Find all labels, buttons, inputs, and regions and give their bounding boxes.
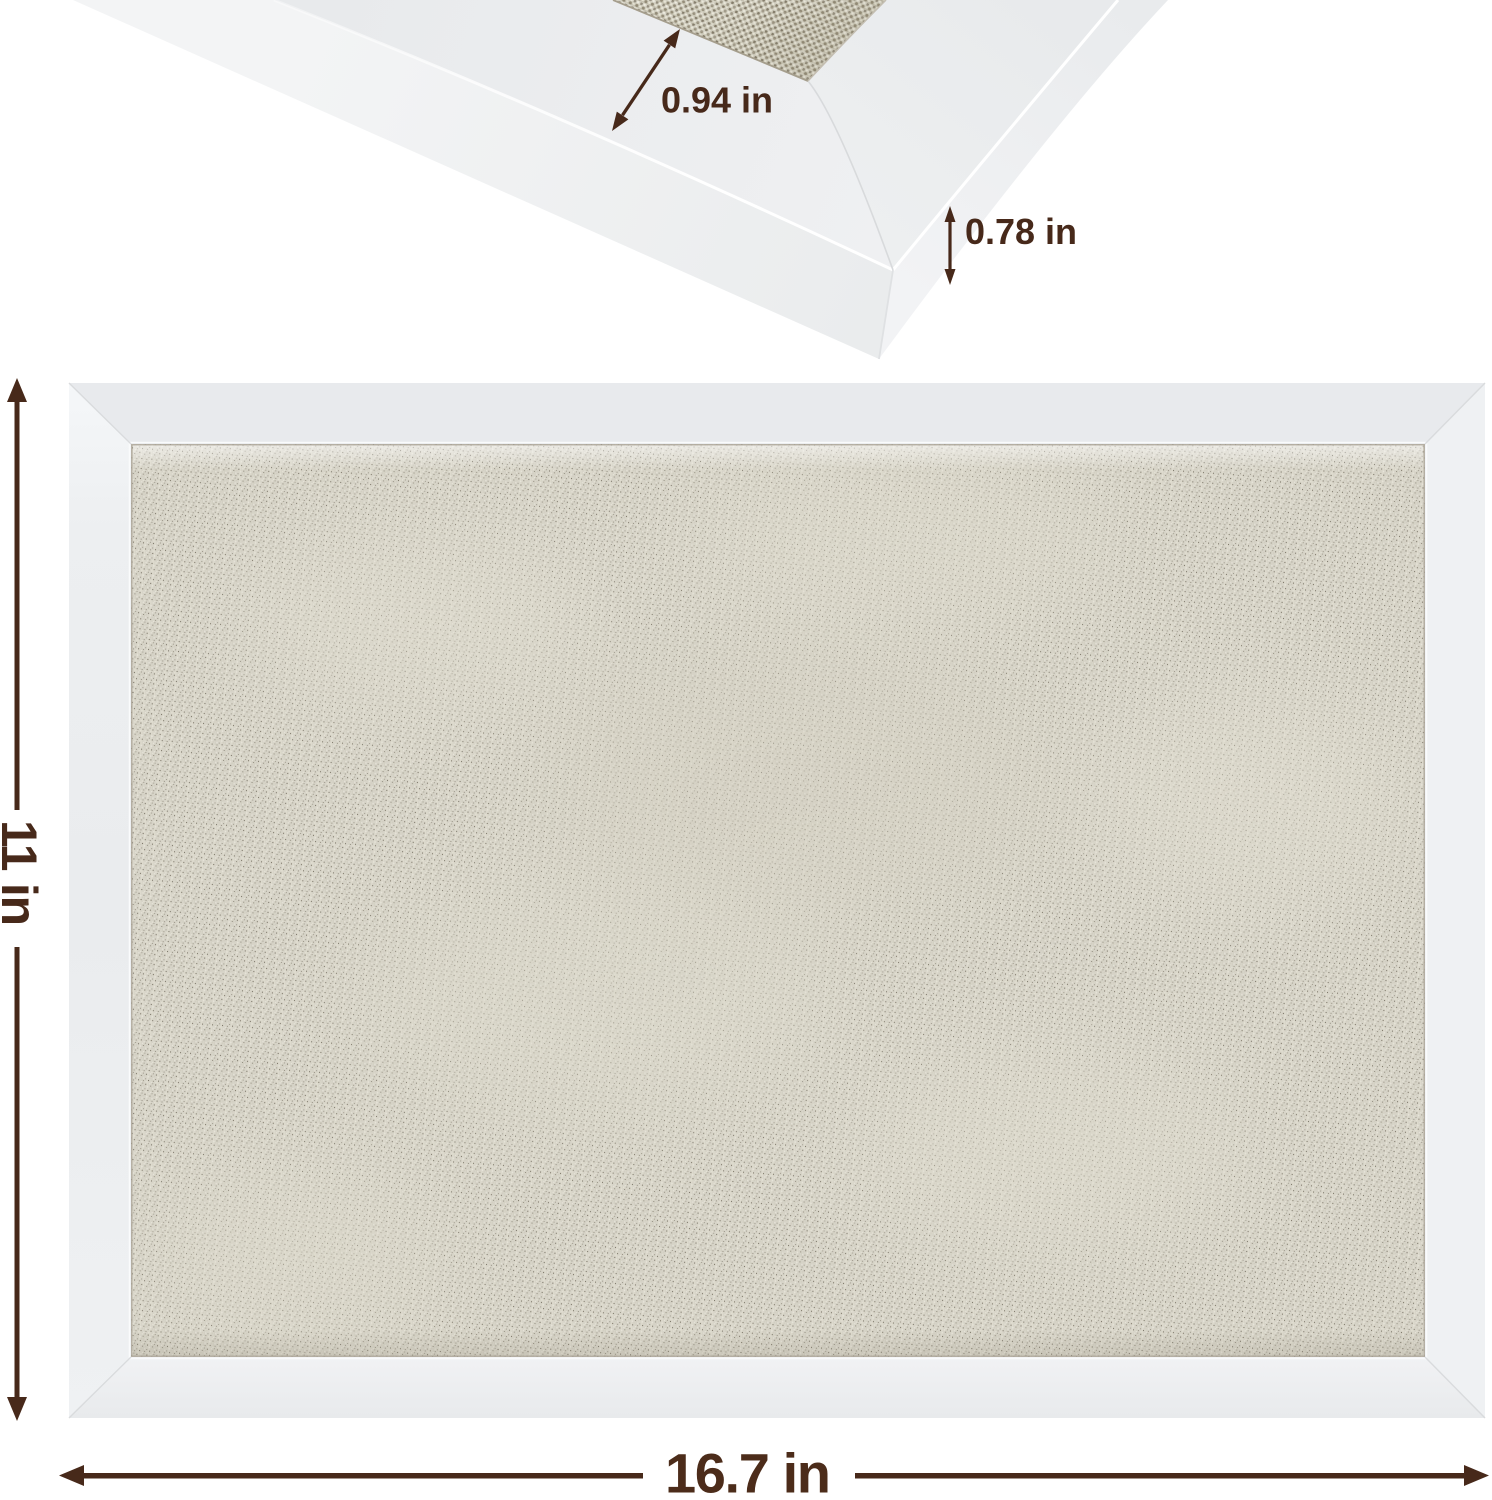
svg-text:0.94 in: 0.94 in — [661, 80, 773, 121]
svg-text:16.7 in: 16.7 in — [665, 1442, 831, 1500]
svg-text:11 in: 11 in — [0, 820, 47, 926]
svg-text:0.78 in: 0.78 in — [965, 211, 1077, 252]
